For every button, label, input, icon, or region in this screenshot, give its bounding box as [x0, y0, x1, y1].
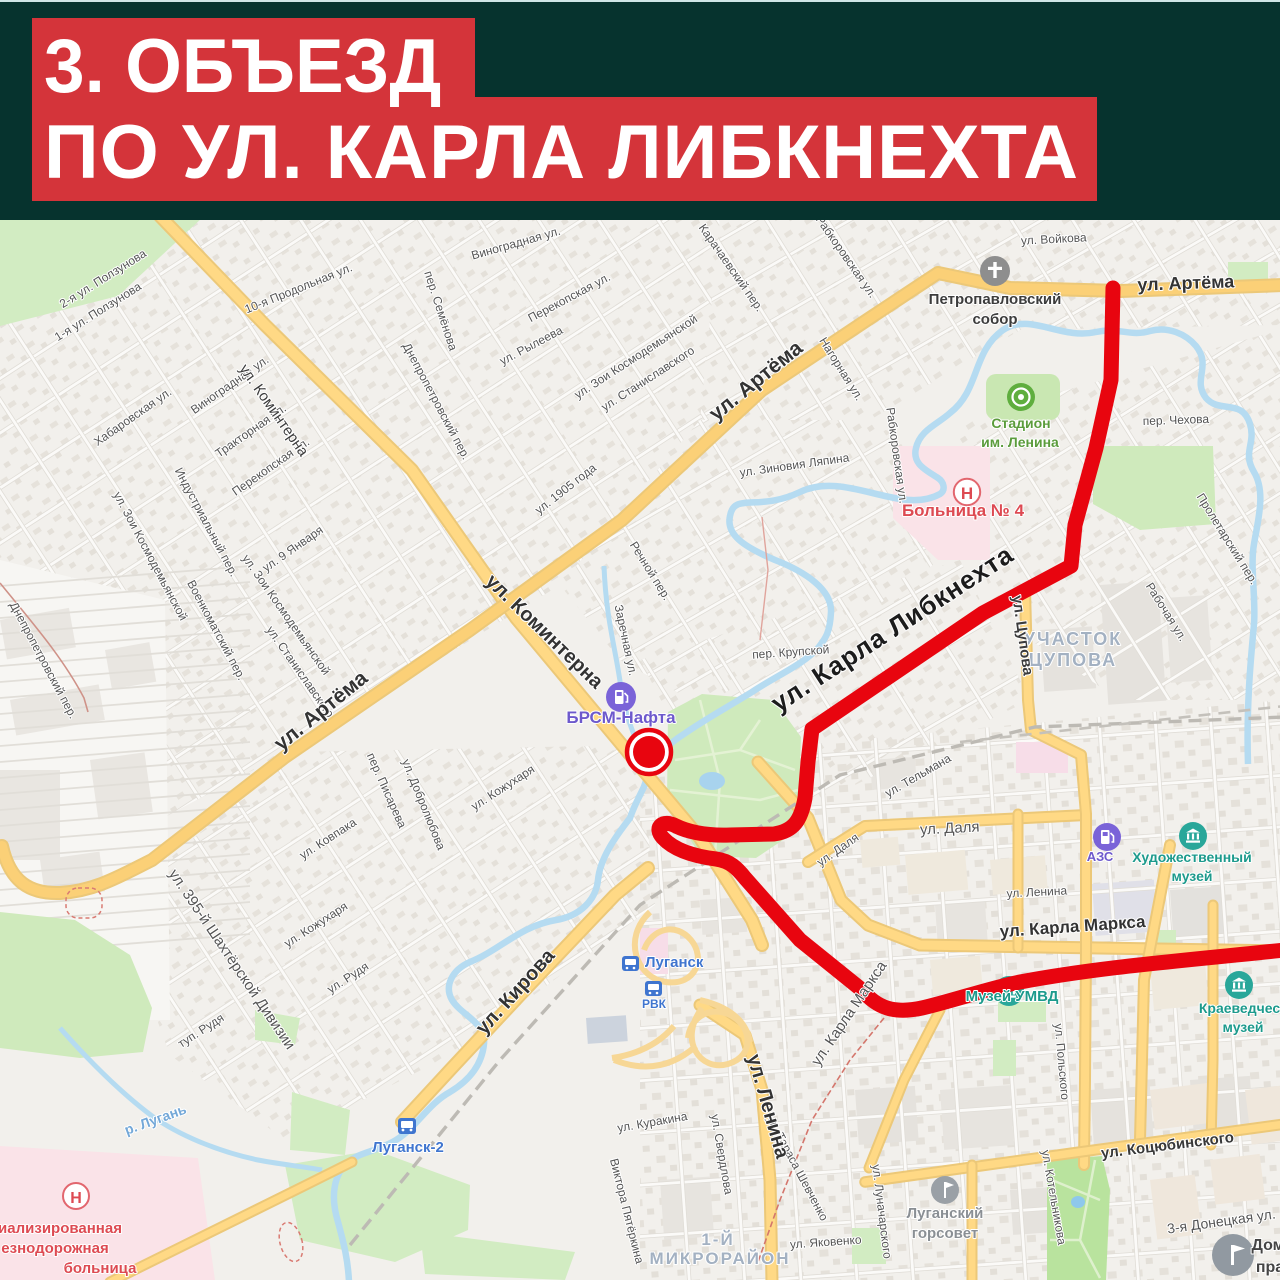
svg-text:Дом: Дом	[1252, 1237, 1280, 1254]
svg-text:музей: музей	[1223, 1019, 1264, 1035]
svg-text:горсовет: горсовет	[912, 1225, 978, 1242]
svg-text:Стадион: Стадион	[991, 415, 1050, 431]
svg-text:Больница № 4: Больница № 4	[902, 501, 1025, 520]
svg-text:УЧАСТОК: УЧАСТОК	[1024, 629, 1122, 649]
svg-text:БРСМ-Нафта: БРСМ-Нафта	[566, 708, 676, 727]
svg-text:Н: Н	[70, 1190, 82, 1207]
svg-text:музей: музей	[1172, 868, 1213, 884]
svg-text:езнодорожная: езнодорожная	[1, 1240, 108, 1257]
svg-text:АЗС: АЗС	[1087, 849, 1114, 864]
svg-text:РВК: РВК	[642, 997, 667, 1011]
svg-text:Краеведческ: Краеведческ	[1199, 1000, 1280, 1016]
svg-text:иализированная: иализированная	[0, 1220, 122, 1237]
svg-text:Художественный: Художественный	[1132, 849, 1252, 865]
svg-text:ул. Даля: ул. Даля	[920, 818, 980, 838]
svg-text:пра: пра	[1256, 1259, 1280, 1276]
svg-text:Луганск-2: Луганск-2	[372, 1139, 444, 1156]
svg-text:ул. Артёма: ул. Артёма	[1137, 271, 1236, 294]
svg-text:Петропавловский: Петропавловский	[929, 291, 1062, 308]
svg-text:ЦУПОВА: ЦУПОВА	[1029, 650, 1117, 670]
svg-text:Музей УМВД: Музей УМВД	[966, 988, 1059, 1005]
svg-text:пер. Чехова: пер. Чехова	[1142, 412, 1209, 428]
svg-text:Луганск: Луганск	[645, 954, 704, 971]
svg-text:им. Ленина: им. Ленина	[981, 434, 1059, 450]
svg-text:больница: больница	[64, 1260, 137, 1277]
svg-text:1-Й: 1-Й	[701, 1230, 734, 1249]
svg-text:МИКРОРАЙОН: МИКРОРАЙОН	[650, 1249, 791, 1268]
svg-text:собор: собор	[972, 311, 1017, 328]
svg-text:Луганский: Луганский	[907, 1205, 984, 1222]
